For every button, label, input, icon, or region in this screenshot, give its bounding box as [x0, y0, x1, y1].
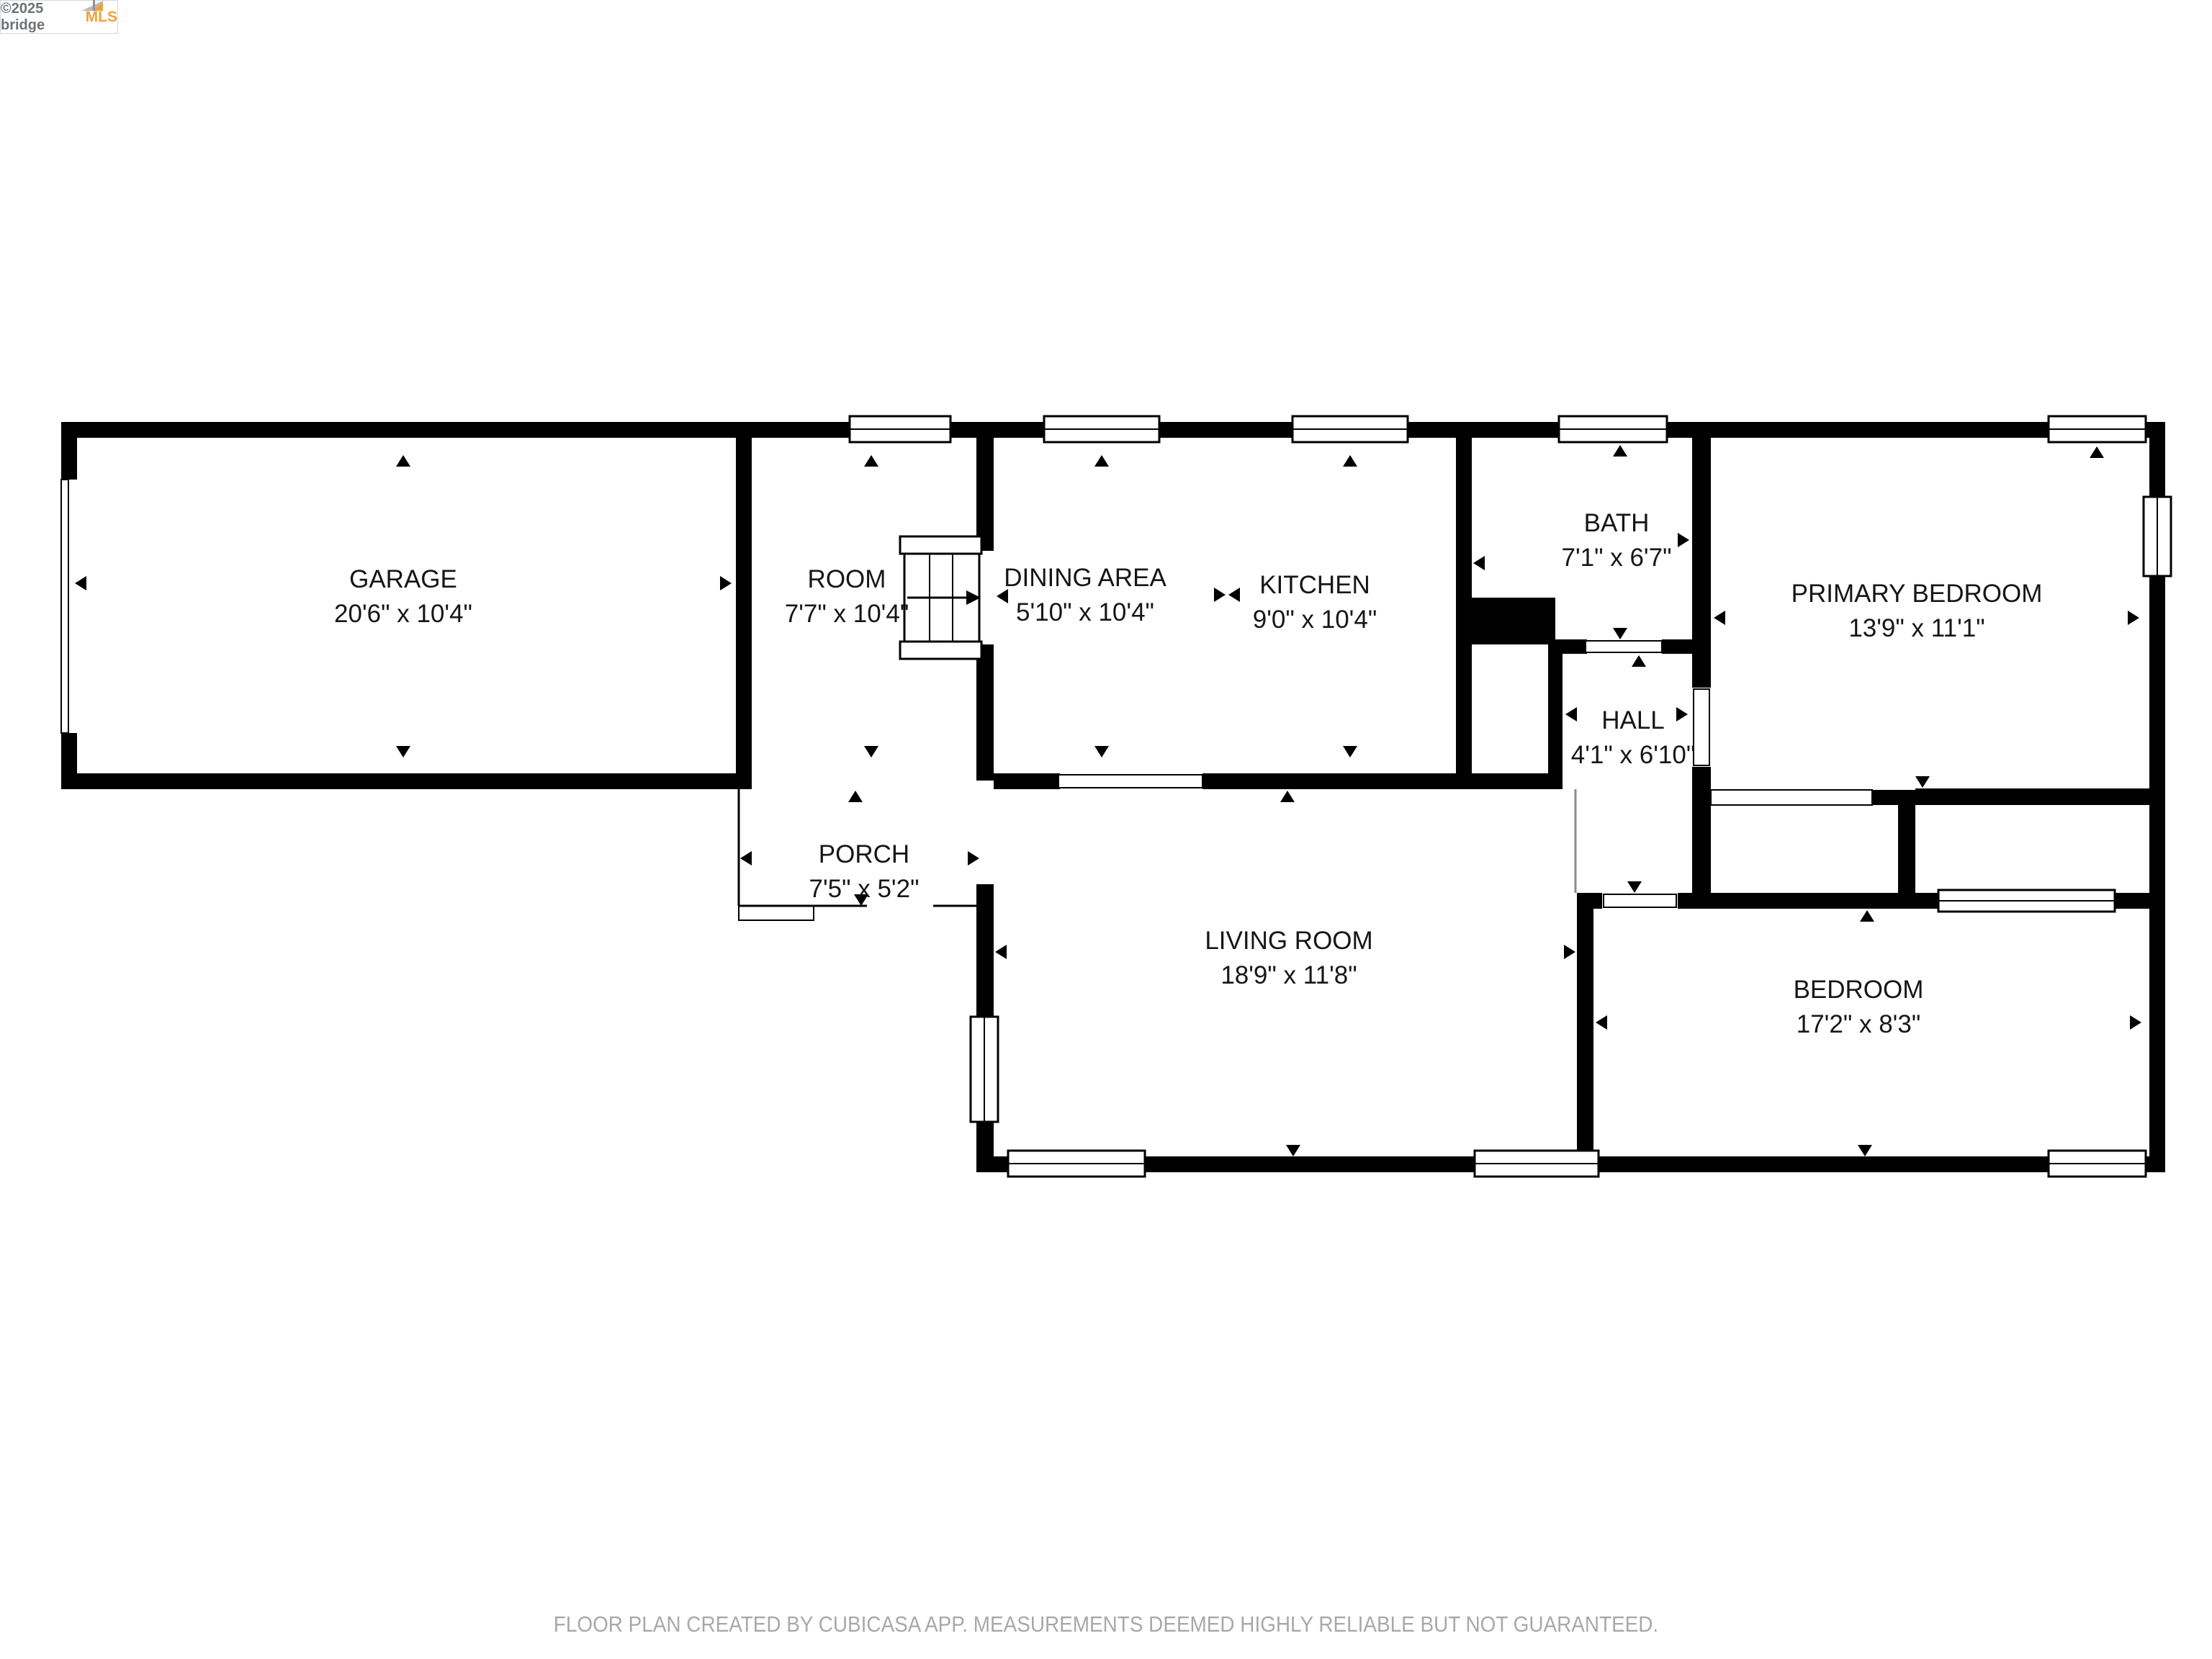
opening — [1604, 894, 1676, 907]
room-label-porch: PORCH 7'5" x 5'2" — [809, 840, 919, 903]
measure-arrow-icon — [864, 746, 878, 757]
room-name: HALL — [1601, 706, 1665, 734]
room-name: DINING AREA — [1004, 564, 1166, 592]
room-dims: 4'1" x 6'10" — [1571, 741, 1696, 769]
wall — [1577, 893, 1593, 1172]
measure-arrow-icon — [968, 851, 979, 866]
wall — [1898, 790, 1915, 909]
wall — [2149, 422, 2165, 497]
measure-arrow-icon — [1676, 707, 1688, 721]
room-label-dining-area: DINING AREA 5'10" x 10'4" — [1004, 564, 1166, 626]
opening — [61, 480, 68, 733]
wall — [1145, 1156, 1475, 1172]
wall — [1555, 639, 1587, 654]
measure-arrow-icon — [1627, 881, 1642, 893]
room-label-kitchen: KITCHEN 9'0" x 10'4" — [1253, 571, 1377, 634]
wall — [1472, 598, 1555, 644]
measure-arrow-icon — [2090, 446, 2104, 458]
room-name: LIVING ROOM — [1205, 927, 1372, 955]
measure-arrow-icon — [1565, 707, 1577, 721]
wall — [1678, 893, 1938, 909]
room-name: PORCH — [819, 840, 909, 868]
room-name: ROOM — [808, 565, 886, 593]
measure-arrow-icon — [995, 945, 1007, 959]
wall — [1202, 773, 1563, 789]
measure-arrow-icon — [1228, 588, 1240, 602]
room-label-garage: GARAGE 20'6" x 10'4" — [334, 565, 472, 628]
wall — [2149, 576, 2165, 1172]
wall — [976, 644, 994, 773]
measure-arrow-icon — [1286, 1145, 1300, 1156]
measure-arrow-icon — [1915, 776, 1930, 788]
measure-arrow-icon — [1714, 611, 1725, 625]
wall — [1662, 639, 1694, 654]
measure-arrow-icon — [1094, 746, 1109, 757]
room-name: BATH — [1584, 509, 1650, 537]
opening — [1711, 790, 1872, 805]
measure-arrow-icon — [1678, 533, 1689, 547]
wall — [1692, 438, 1711, 688]
room-name: GARAGE — [349, 565, 457, 593]
measure-arrow-icon — [1094, 455, 1109, 467]
room-name: BEDROOM — [1794, 976, 1924, 1004]
room-dims: 20'6" x 10'4" — [334, 600, 472, 628]
stair-bottom-cap — [900, 642, 981, 659]
opening — [1694, 689, 1709, 765]
measure-arrow-icon — [864, 455, 878, 467]
wall — [736, 438, 752, 773]
wall — [994, 773, 1060, 789]
room-dims: 18'9" x 11'8" — [1220, 961, 1357, 989]
opening — [739, 906, 814, 920]
measure-arrow-icon — [740, 851, 752, 866]
measure-arrow-icon — [1214, 588, 1226, 602]
measure-arrow-icon — [396, 455, 410, 467]
measure-arrow-icon — [1473, 556, 1485, 570]
wall — [1692, 767, 1711, 894]
opening — [1058, 775, 1202, 788]
stair-top-cap — [900, 536, 981, 554]
room-dims: 5'10" x 10'4" — [1016, 598, 1154, 626]
measure-arrow-icon — [1858, 1145, 1872, 1156]
measure-arrow-icon — [396, 746, 410, 757]
room-name: KITCHEN — [1259, 571, 1370, 599]
wall — [1548, 644, 1563, 789]
measure-arrow-icon — [1343, 455, 1357, 467]
measure-arrow-icon — [1280, 791, 1295, 802]
measure-arrow-icon — [75, 576, 86, 590]
wall — [1456, 438, 1472, 773]
measure-arrow-icon — [720, 576, 732, 590]
wall — [1915, 788, 2149, 805]
room-label-primary-bedroom: PRIMARY BEDROOM 13'9" x 11'1" — [1791, 580, 2043, 642]
measure-arrow-icon — [1596, 1015, 1607, 1030]
disclaimer-text: FLOOR PLAN CREATED BY CUBICASA APP. MEAS… — [111, 1611, 2102, 1637]
wall — [976, 1156, 1010, 1172]
room-dims: 9'0" x 10'4" — [1253, 606, 1377, 634]
floor-plan-canvas: GARAGE 20'6" x 10'4" ROOM 7'7" x 10'4" D… — [0, 0, 2212, 1659]
measure-arrow-icon — [2128, 611, 2139, 625]
room-dims: 7'5" x 5'2" — [809, 875, 919, 903]
room-label-living-room: LIVING ROOM 18'9" x 11'8" — [1205, 927, 1372, 989]
room-dims: 7'7" x 10'4" — [785, 600, 909, 628]
room-dims: 13'9" x 11'1" — [1848, 614, 1984, 642]
measure-arrow-icon — [2130, 1015, 2141, 1030]
measure-arrow-icon — [1613, 628, 1627, 639]
wall — [61, 422, 77, 480]
measure-arrow-icon — [1564, 945, 1575, 959]
measure-arrow-icon — [1860, 910, 1874, 922]
measure-arrow-icon — [848, 791, 863, 802]
wall — [1599, 1156, 2049, 1172]
staircase — [900, 536, 981, 659]
room-name: PRIMARY BEDROOM — [1791, 580, 2043, 608]
measure-arrow-icon — [1632, 655, 1646, 667]
opening — [1586, 641, 1662, 652]
measure-arrow-icon — [1343, 746, 1357, 757]
room-dims: 17'2" x 8'3" — [1797, 1010, 1921, 1038]
room-label-room: ROOM 7'7" x 10'4" — [785, 565, 909, 628]
wall — [976, 884, 994, 1017]
wall — [61, 773, 752, 789]
wall — [976, 773, 994, 781]
room-label-bedroom: BEDROOM 17'2" x 8'3" — [1794, 976, 1924, 1038]
room-dims: 7'1" x 6'7" — [1561, 544, 1671, 572]
measure-arrow-icon — [1613, 445, 1627, 457]
wall — [976, 438, 994, 551]
room-label-bath: BATH 7'1" x 6'7" — [1561, 509, 1671, 572]
